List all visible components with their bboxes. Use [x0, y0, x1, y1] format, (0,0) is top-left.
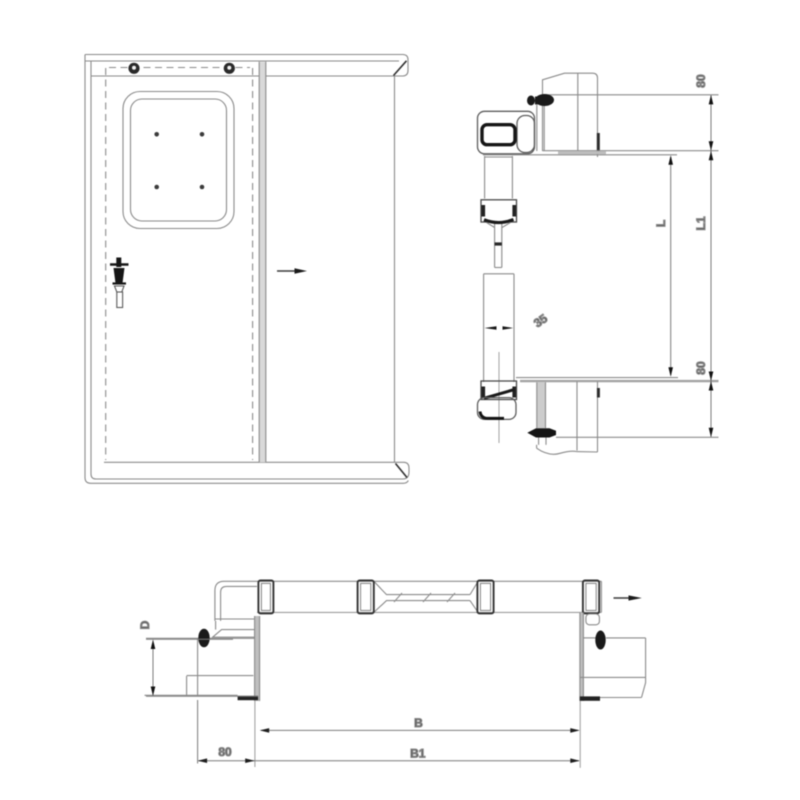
svg-text:B: B	[414, 716, 423, 730]
svg-text:80: 80	[694, 74, 708, 88]
svg-text:80: 80	[218, 745, 232, 759]
svg-text:B1: B1	[410, 747, 426, 761]
svg-text:L1: L1	[694, 216, 708, 230]
svg-text:35: 35	[531, 311, 550, 330]
svg-text:L: L	[654, 220, 668, 227]
svg-text:D: D	[138, 620, 152, 629]
svg-text:80: 80	[694, 361, 708, 375]
